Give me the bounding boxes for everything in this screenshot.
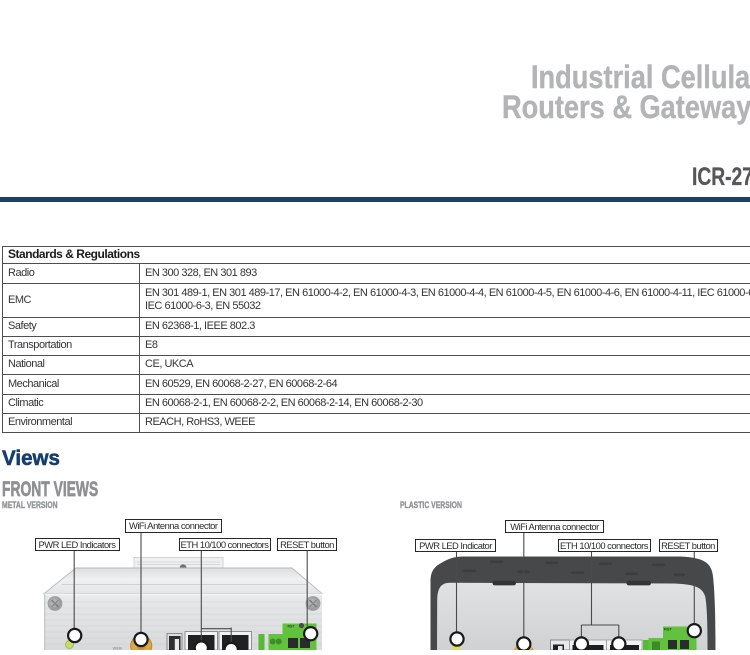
svg-text:RST: RST [288,625,296,629]
svg-text:WEB: WEB [113,646,122,651]
svg-text:RST: RST [664,627,673,632]
